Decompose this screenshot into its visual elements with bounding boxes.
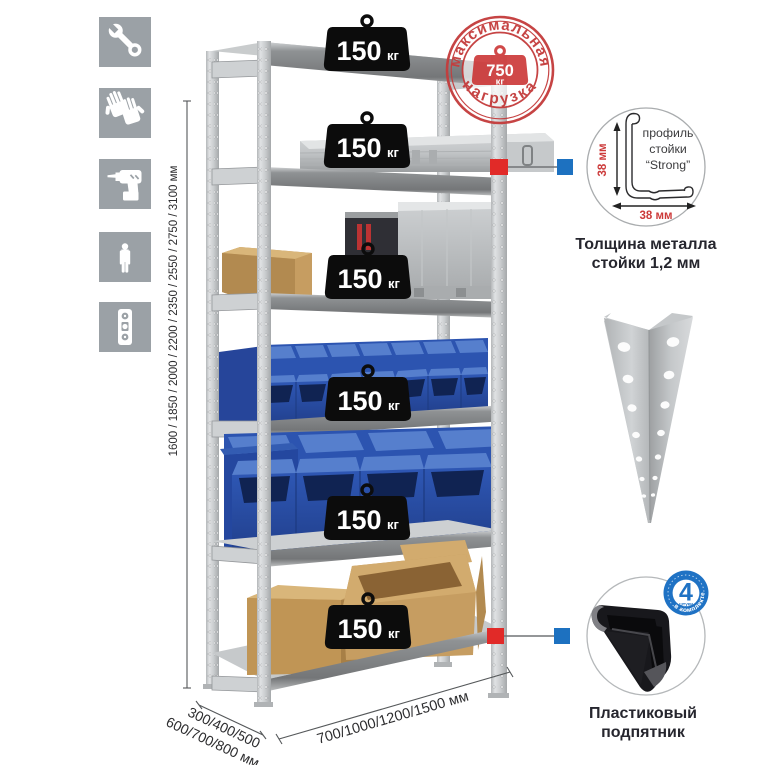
svg-text:38 мм: 38 мм	[639, 210, 672, 222]
svg-text:150: 150	[337, 386, 382, 416]
svg-text:1600 / 1850 / 2000 / 2200 / 23: 1600 / 1850 / 2000 / 2200 / 2350 / 2550 …	[168, 166, 180, 457]
svg-text:стойки 1,2 мм: стойки 1,2 мм	[592, 255, 701, 272]
svg-text:150: 150	[336, 505, 381, 535]
svg-text:кг: кг	[387, 517, 400, 532]
svg-text:38 мм: 38 мм	[597, 143, 609, 176]
svg-text:кг: кг	[388, 398, 401, 413]
svg-text:штуки: штуки	[679, 602, 693, 607]
svg-text:“Strong”: “Strong”	[646, 158, 690, 172]
svg-text:кг: кг	[388, 626, 401, 641]
svg-text:150: 150	[336, 36, 381, 66]
svg-text:Пластиковый: Пластиковый	[589, 705, 697, 722]
svg-text:кг: кг	[387, 48, 400, 63]
svg-text:стойки: стойки	[649, 142, 687, 156]
svg-text:150: 150	[336, 133, 381, 163]
svg-text:подпятник: подпятник	[601, 724, 686, 741]
svg-text:кг: кг	[387, 145, 400, 160]
svg-text:150: 150	[337, 264, 382, 294]
svg-text:профиль: профиль	[643, 126, 694, 140]
svg-text:кг: кг	[388, 276, 401, 291]
svg-text:150: 150	[337, 614, 382, 644]
svg-text:кг: кг	[496, 77, 505, 88]
svg-text:Толщина металла: Толщина металла	[575, 236, 716, 253]
